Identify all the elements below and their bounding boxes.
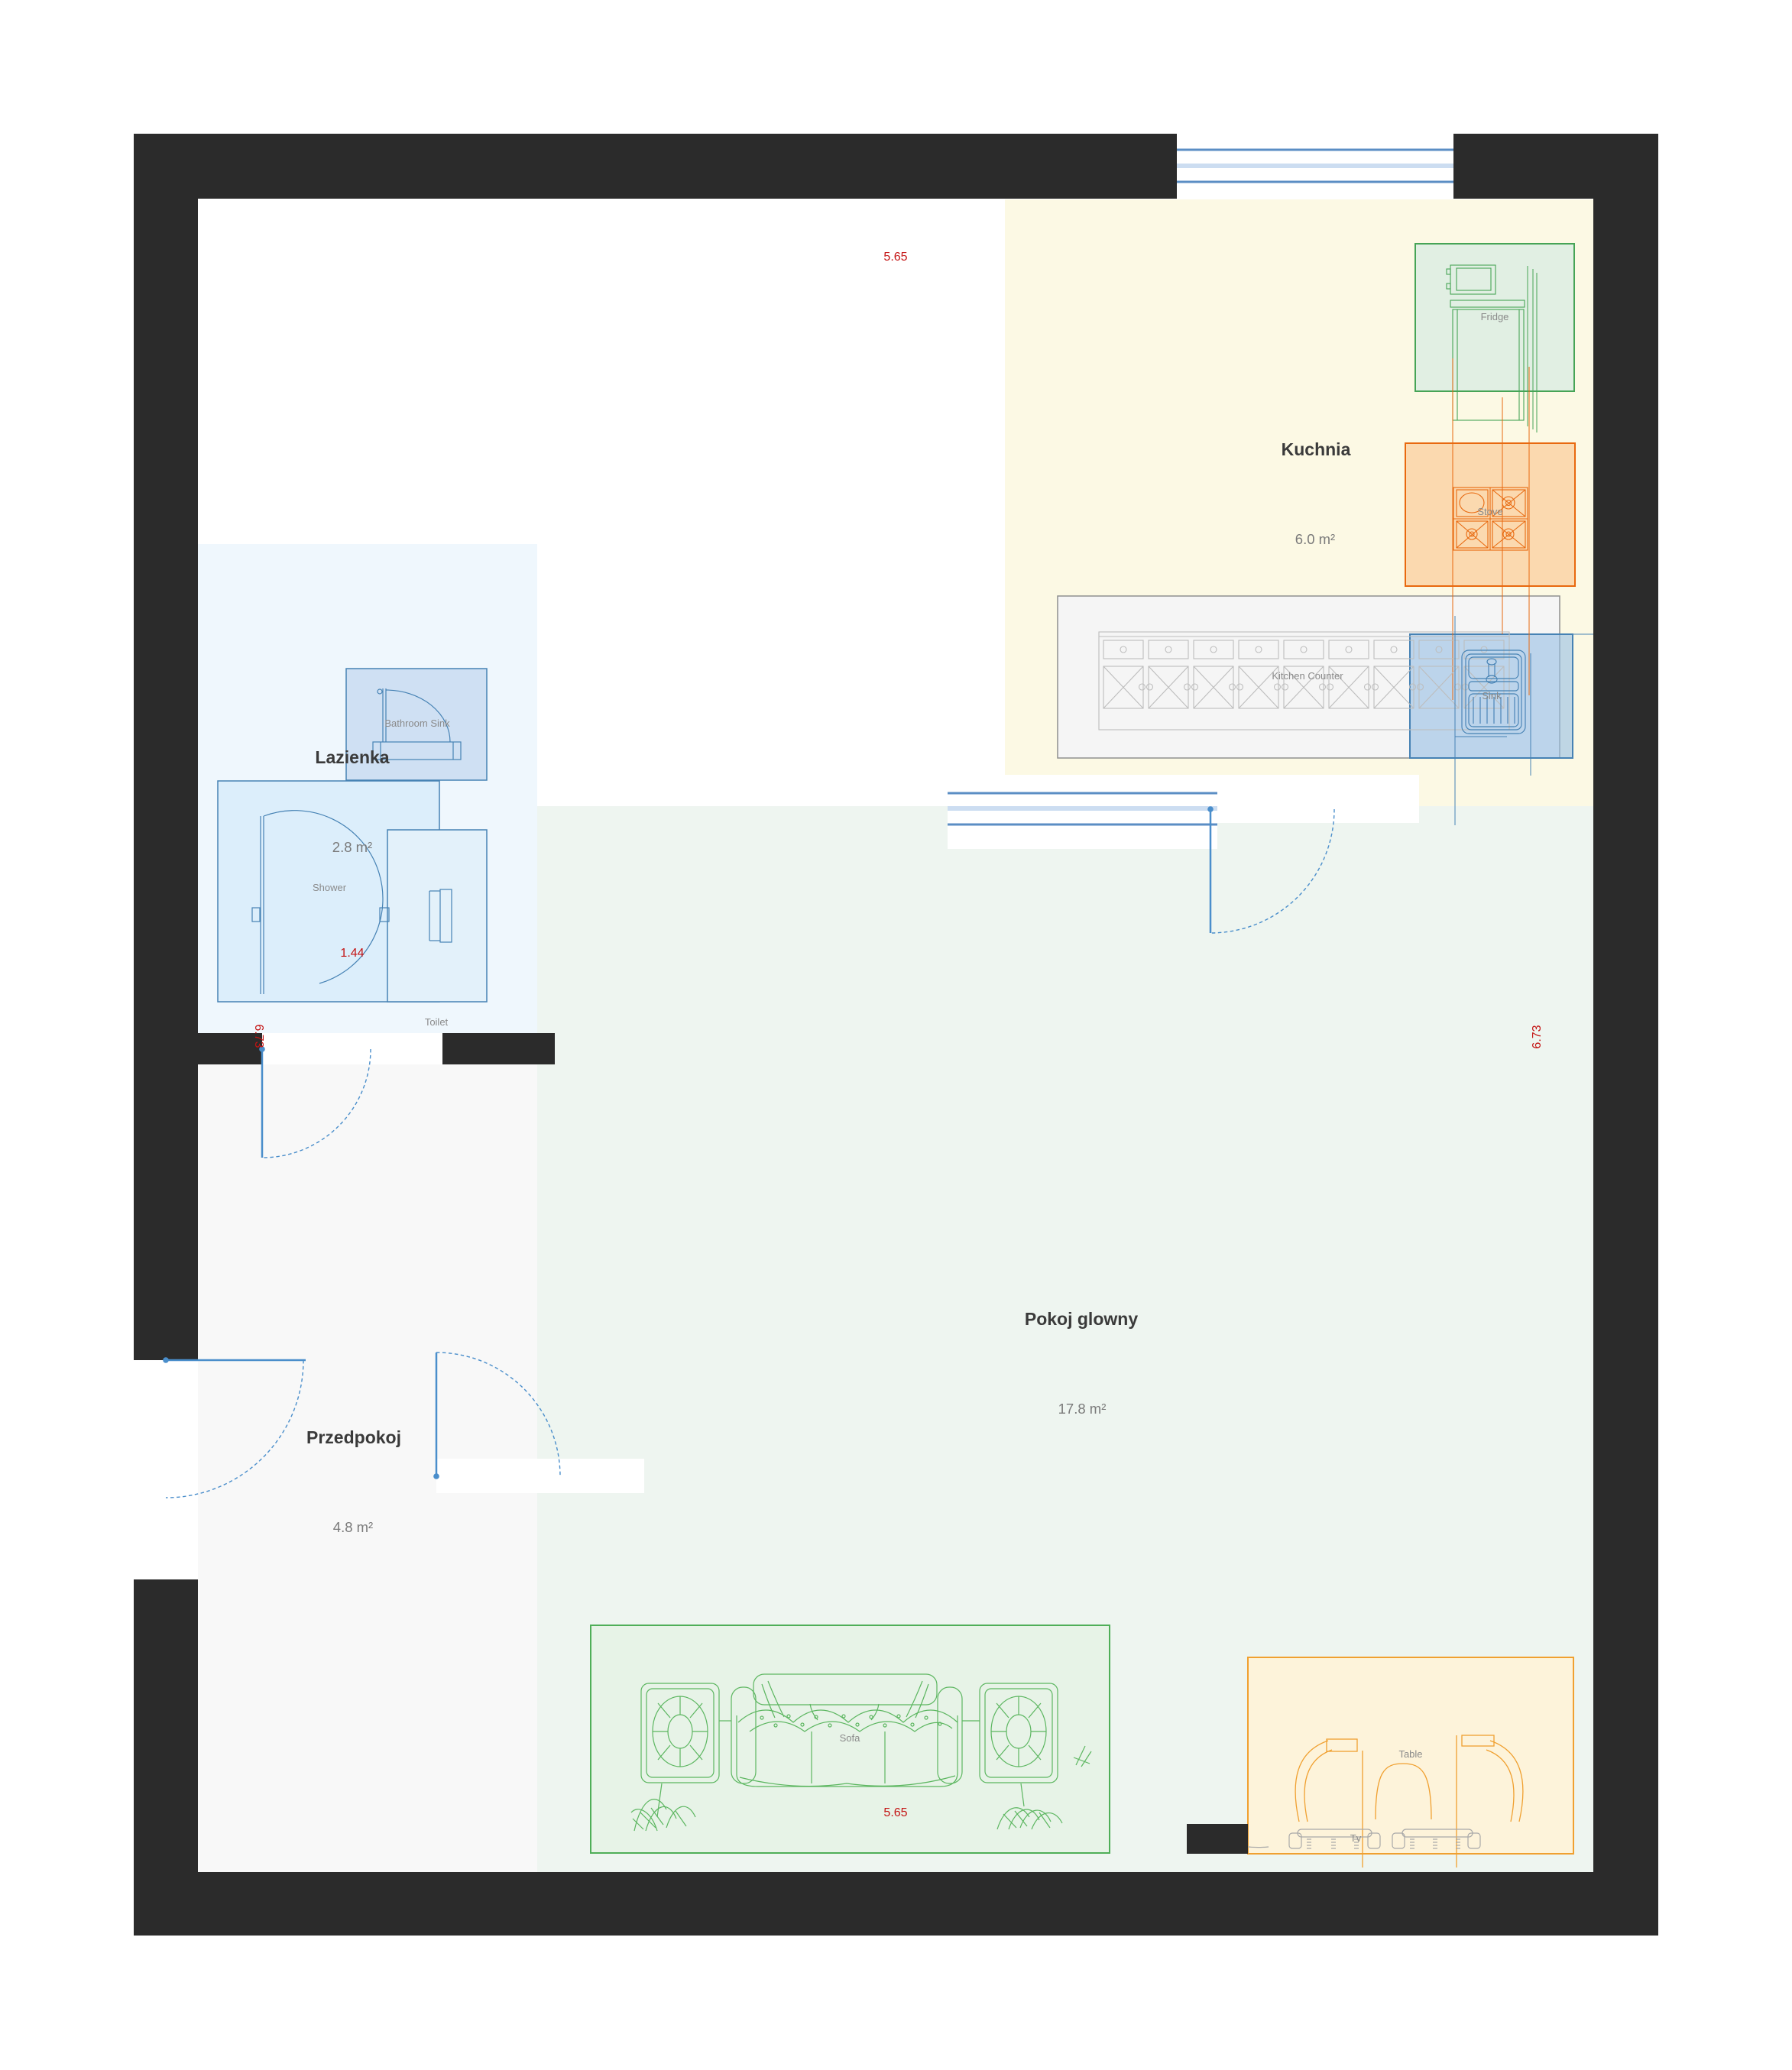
svg-text:Kuchnia: Kuchnia [1282, 439, 1351, 459]
svg-text:Tv: Tv [1350, 1832, 1362, 1844]
svg-text:Sink: Sink [1482, 690, 1502, 701]
svg-text:17.8 m²: 17.8 m² [1058, 1401, 1107, 1417]
svg-text:Kitchen Counter: Kitchen Counter [1272, 670, 1343, 682]
svg-text:Pokoj glowny: Pokoj glowny [1025, 1309, 1138, 1329]
svg-text:6.73: 6.73 [252, 1024, 265, 1048]
svg-text:Stove: Stove [1477, 506, 1502, 517]
svg-text:1.44: 1.44 [340, 947, 364, 960]
svg-text:6.0 m²: 6.0 m² [1295, 531, 1335, 547]
svg-text:6.73: 6.73 [1531, 1025, 1544, 1048]
svg-text:5.65: 5.65 [883, 1806, 907, 1819]
svg-text:Fridge: Fridge [1481, 311, 1509, 322]
svg-text:2.8 m²: 2.8 m² [332, 839, 372, 855]
svg-text:5.65: 5.65 [883, 251, 907, 264]
svg-text:Bathroom Sink: Bathroom Sink [384, 718, 450, 729]
svg-text:Table: Table [1398, 1748, 1422, 1760]
svg-text:Shower: Shower [313, 882, 347, 893]
svg-text:4.8 m²: 4.8 m² [333, 1519, 373, 1535]
svg-text:Toilet: Toilet [425, 1016, 449, 1028]
svg-text:Sofa: Sofa [840, 1732, 861, 1744]
svg-text:Przedpokoj: Przedpokoj [306, 1427, 401, 1447]
svg-text:Lazienka: Lazienka [315, 747, 389, 767]
